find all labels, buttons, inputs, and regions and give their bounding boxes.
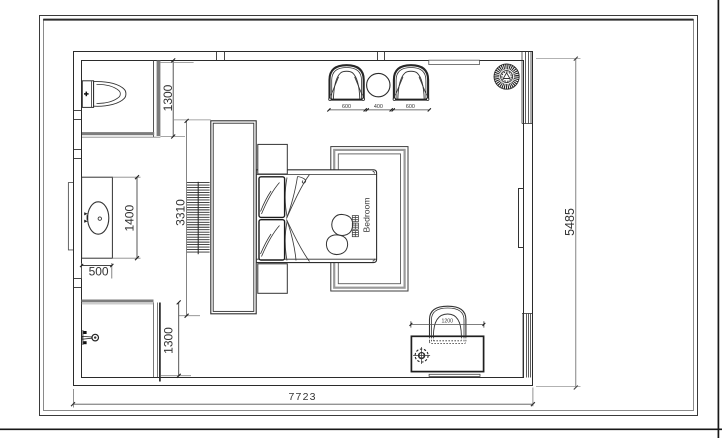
svg-text:Bedroom: Bedroom [362, 198, 372, 233]
svg-text:500: 500 [89, 264, 109, 278]
svg-text:1400: 1400 [123, 205, 137, 232]
svg-text:1300: 1300 [161, 84, 175, 111]
svg-text:600: 600 [406, 104, 415, 110]
svg-text:1200: 1200 [442, 318, 454, 324]
svg-text:5485: 5485 [563, 208, 577, 236]
svg-text:400: 400 [374, 104, 383, 110]
svg-text:1300: 1300 [162, 327, 176, 354]
svg-text:7723: 7723 [289, 391, 317, 403]
svg-text:600: 600 [342, 104, 351, 110]
svg-text:3310: 3310 [174, 199, 188, 226]
